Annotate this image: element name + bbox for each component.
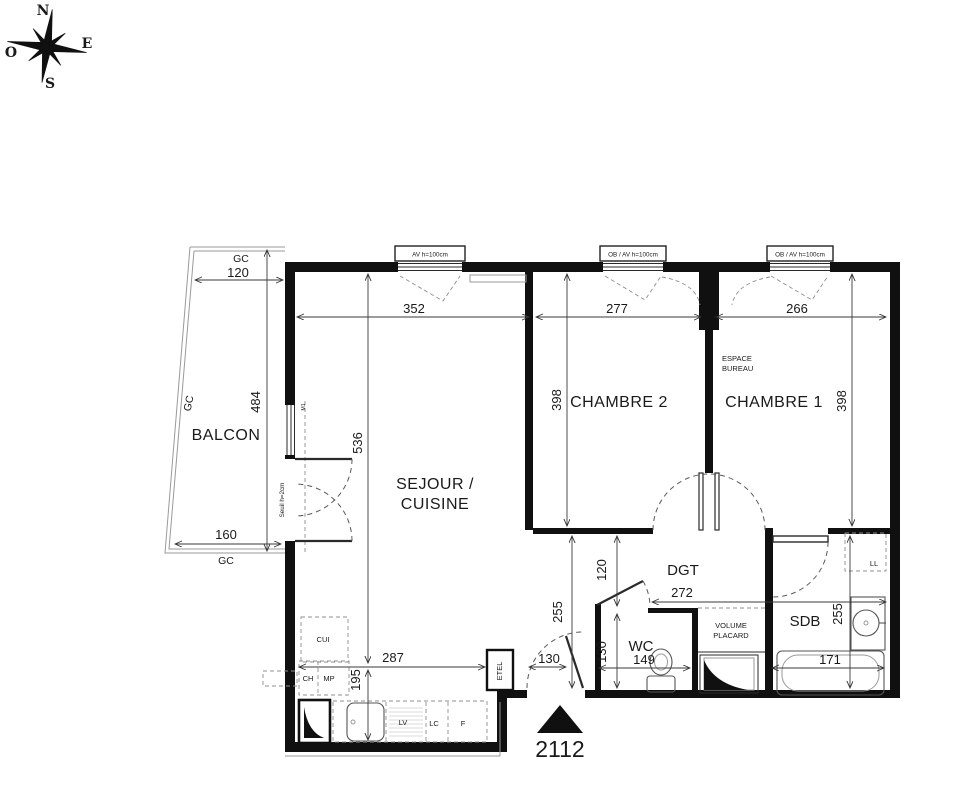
label-etel: ETEL: [495, 662, 504, 681]
window-ob-left-label: OB / AV h=100cm: [608, 252, 658, 259]
room-label-bathroom: SDB: [790, 613, 821, 630]
dim-195: 195: [348, 669, 363, 691]
room-label-living-2: CUISINE: [401, 496, 469, 513]
floor-plan-drawing: N E S O: [0, 0, 963, 800]
walls: [285, 262, 900, 756]
room-label-balcony: BALCON: [192, 427, 261, 444]
unit-number: 2112: [535, 736, 584, 762]
dim-272: 272: [671, 585, 693, 600]
dim-255-bath: 255: [830, 603, 845, 625]
compass-south-label: S: [45, 76, 55, 92]
window-av-label: AV h=100cm: [412, 252, 448, 259]
bathroom-door: [773, 536, 828, 597]
room-label-office-1: ESPACE: [722, 354, 752, 363]
label-lv: LV: [399, 718, 408, 727]
window-living: AV h=100cm: [395, 246, 526, 301]
dim-gc-side: GC: [182, 394, 197, 412]
window-tag-m1: M1: [301, 403, 307, 410]
threshold-label: Seuil h=2cm: [279, 483, 286, 518]
room-label-bedroom1: CHAMBRE 1: [725, 394, 823, 411]
dim-287: 287: [382, 650, 404, 665]
label-mp: MP: [323, 674, 334, 683]
dim-171: 171: [819, 652, 841, 667]
compass-north-label: N: [37, 3, 50, 19]
dim-gc-top: GC: [233, 253, 249, 265]
fixture-labels: CUI CH MP LV LC F ETEL LL: [303, 559, 879, 728]
label-f: F: [461, 719, 466, 728]
window-bedroom2: OB / AV h=100cm: [600, 246, 700, 305]
room-label-wc: WC: [629, 638, 654, 655]
label-lc: LC: [429, 719, 439, 728]
window-bedroom1: OB / AV h=100cm: [732, 246, 833, 305]
label-cui: CUI: [317, 635, 330, 644]
dim-277: 277: [606, 301, 628, 316]
compass-east-label: E: [82, 36, 93, 52]
room-label-hallway: DGT: [667, 562, 699, 579]
bedroom-doors: [653, 473, 765, 530]
room-label-closet-2: PLACARD: [713, 631, 749, 640]
dim-352: 352: [403, 301, 425, 316]
washbasin: [851, 597, 886, 650]
dim-398-bedroom2: 398: [549, 389, 564, 411]
room-label-bedroom2: CHAMBRE 2: [570, 394, 668, 411]
dim-120-top: 120: [227, 265, 249, 280]
label-ll: LL: [870, 559, 878, 568]
dim-484: 484: [248, 391, 263, 413]
wc-door: [597, 581, 650, 607]
technical-duct: [299, 700, 330, 743]
dimension-labels: GC 120 GC 484 160 GC 352 277 266 398 398…: [182, 253, 849, 691]
compass-rose-icon: N E S O: [2, 3, 92, 92]
balcony-window-door: Seuil h=2cm M1: [279, 401, 352, 555]
entry-marker: [537, 705, 583, 733]
dim-130-wc: 130: [594, 641, 609, 663]
kitchen-tall-units: [263, 617, 349, 695]
dim-266: 266: [786, 301, 808, 316]
dim-536: 536: [350, 432, 365, 454]
dim-160: 160: [215, 527, 237, 542]
compass-west-label: O: [5, 45, 17, 61]
dim-120-hall: 120: [594, 559, 609, 581]
dim-255-hall: 255: [550, 601, 565, 623]
dim-130-entry: 130: [538, 651, 560, 666]
window-ob-right-label: OB / AV h=100cm: [775, 252, 825, 259]
room-label-living-1: SEJOUR /: [396, 476, 474, 493]
room-label-office-2: BUREAU: [722, 364, 753, 373]
dim-gc-bottom: GC: [218, 555, 234, 567]
dim-398-bedroom1: 398: [834, 390, 849, 412]
room-label-closet-1: VOLUME: [715, 621, 747, 630]
floor-plan-page: N E S O: [0, 0, 963, 800]
washing-machine-slot: [845, 533, 886, 571]
label-ch: CH: [303, 674, 314, 683]
